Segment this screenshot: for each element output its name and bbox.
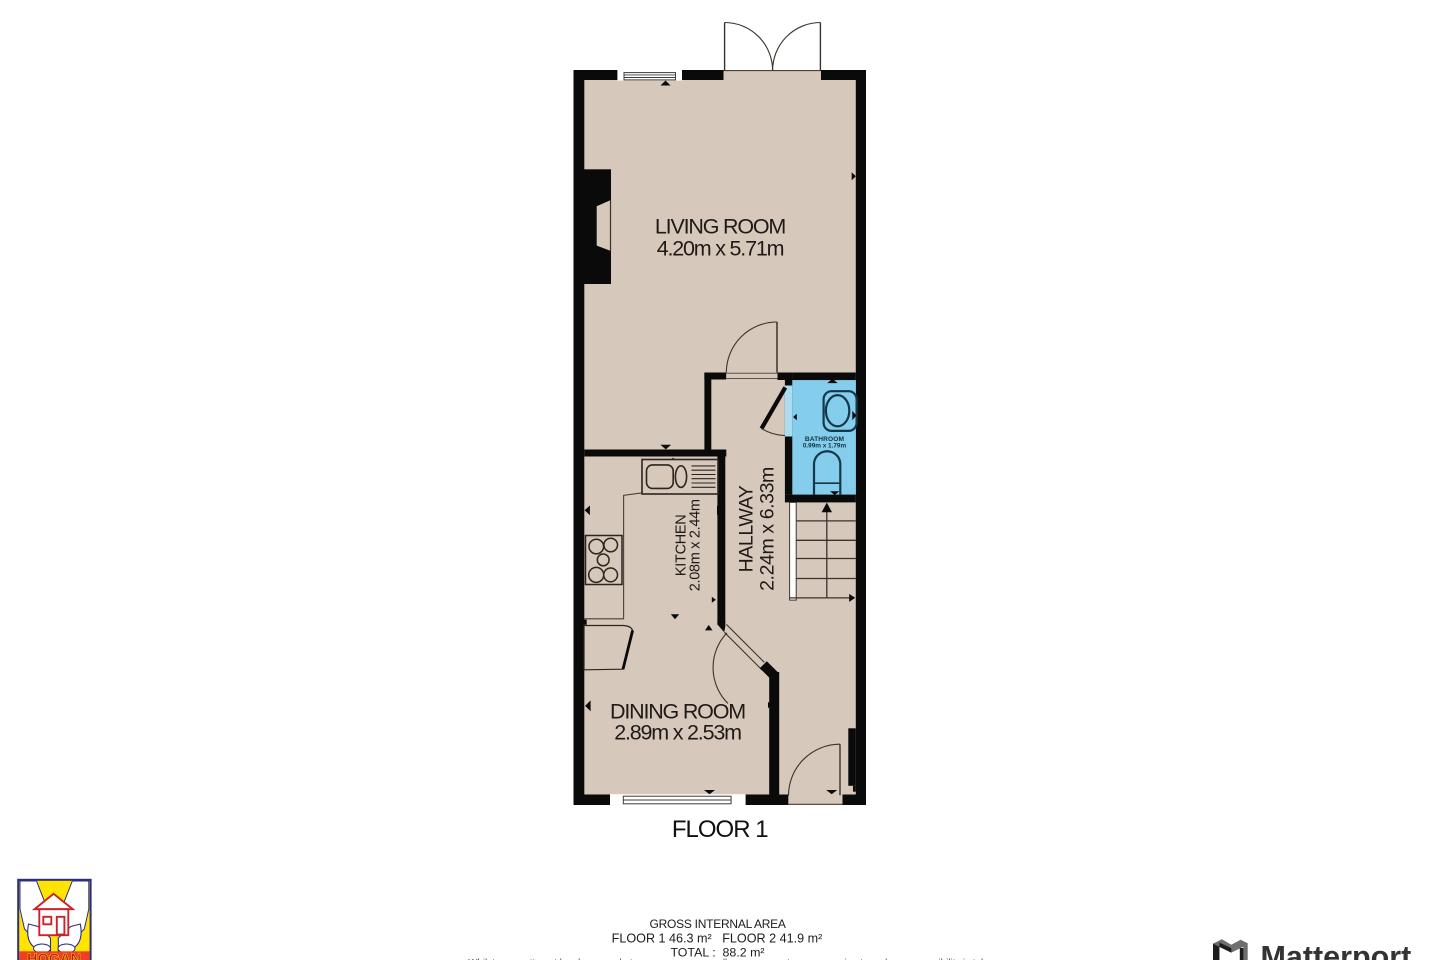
svg-text:4.20m x 5.71m: 4.20m x 5.71m xyxy=(657,237,784,261)
svg-text:0.99m x 1.79m: 0.99m x 1.79m xyxy=(803,443,847,450)
svg-text:HOGAN: HOGAN xyxy=(27,952,81,960)
svg-text:GROSS INTERNAL AREA: GROSS INTERNAL AREA xyxy=(650,917,786,931)
svg-text:2.24m x 6.33m: 2.24m x 6.33m xyxy=(756,467,778,591)
svg-text:FLOOR 1 46.3 m² FLOOR 2 41.9: FLOOR 1 46.3 m² FLOOR 2 41.9 m² xyxy=(612,931,823,945)
svg-text:LIVING ROOM: LIVING ROOM xyxy=(655,215,785,239)
svg-text:2.89m x 2.53m: 2.89m x 2.53m xyxy=(614,721,741,745)
svg-text:FLOOR 1: FLOOR 1 xyxy=(672,816,768,843)
svg-text:2.08m x 2.44m: 2.08m x 2.44m xyxy=(688,499,704,591)
svg-text:Matterport: Matterport xyxy=(1261,940,1412,960)
svg-text:HALLWAY: HALLWAY xyxy=(735,485,757,572)
